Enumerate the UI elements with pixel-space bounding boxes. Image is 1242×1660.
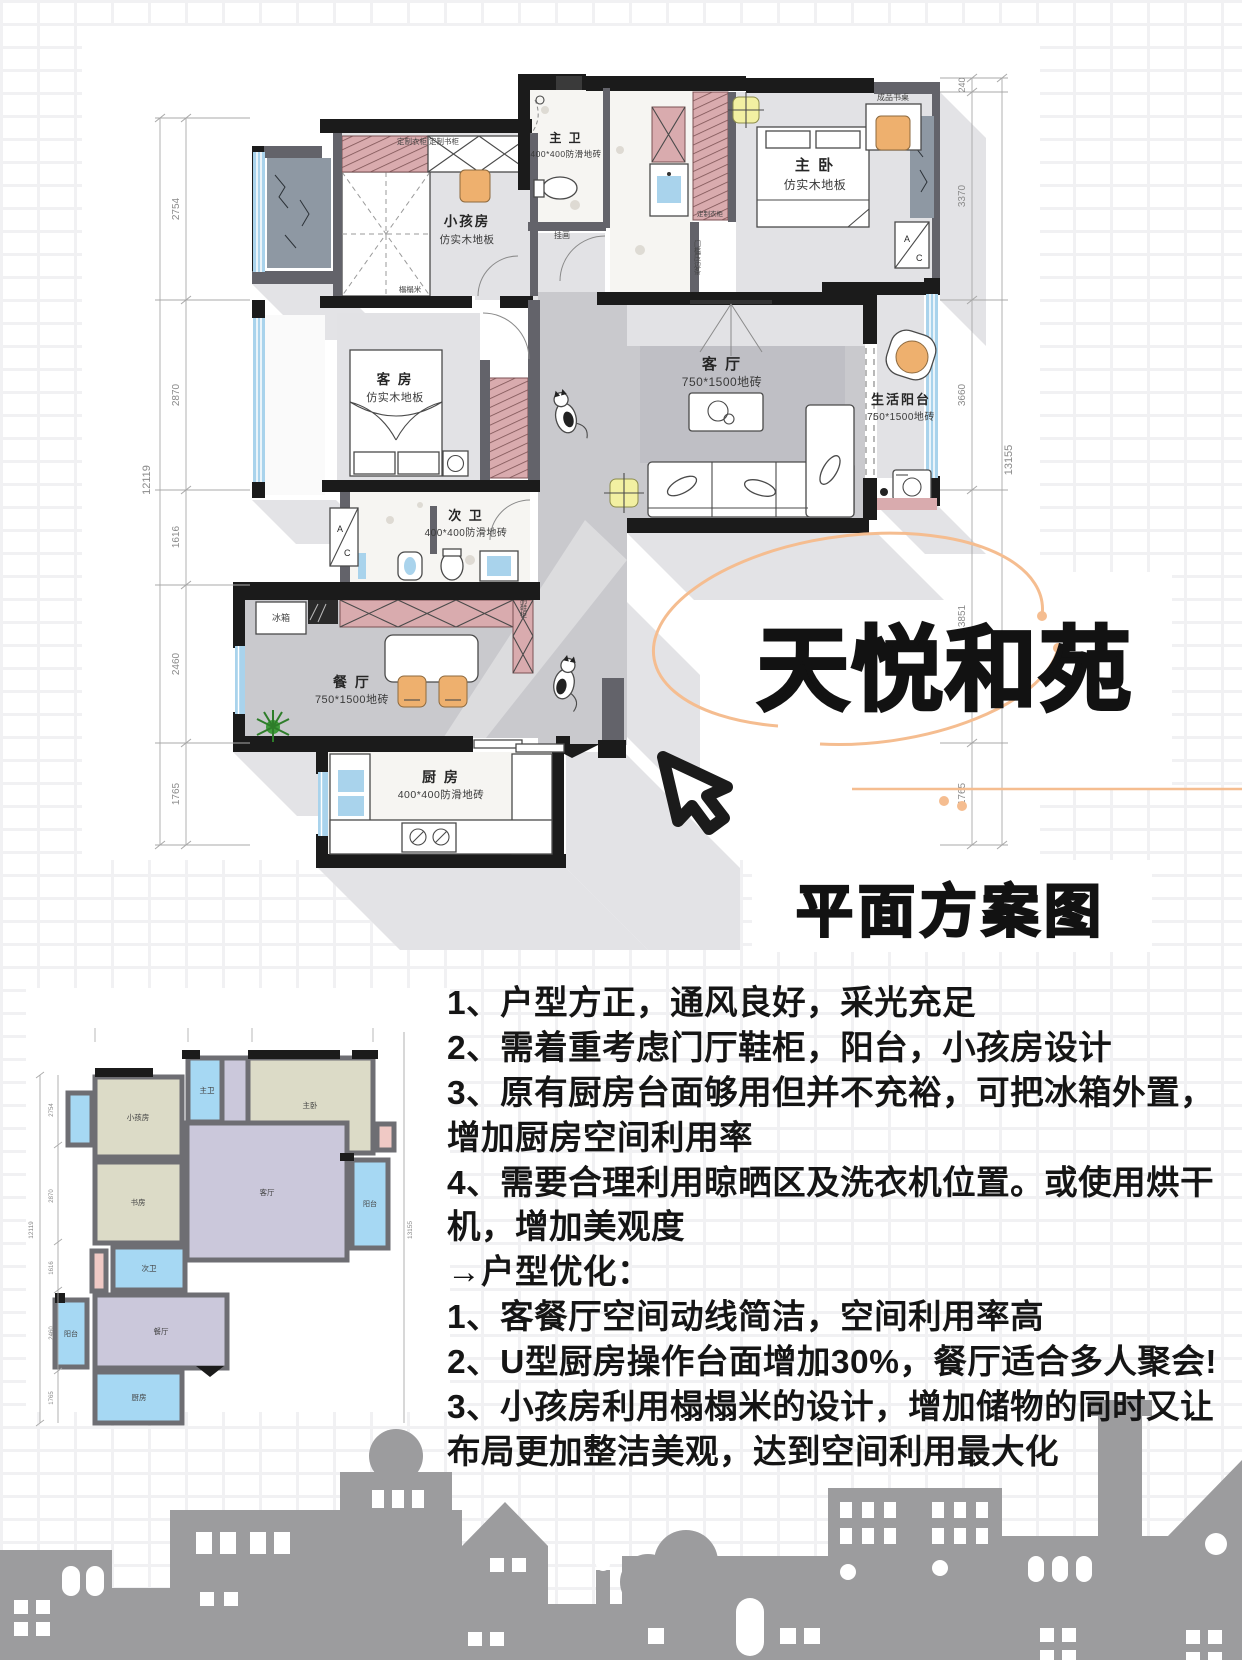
guest-room-name: 客 房 — [376, 371, 414, 387]
dim-right-total: 13155 — [1003, 445, 1015, 476]
dim-left-2: 1616 — [171, 525, 182, 548]
master-bath-toilet — [534, 177, 577, 199]
small-floor-plan: 小孩房 主卫 主卧 书房 客厅 阳台 次卫 阳台 餐厅 厨房 12119 275… — [28, 1028, 414, 1426]
guest-door-arc — [483, 313, 529, 359]
page-subtitle: 平面方案图 — [758, 866, 1144, 948]
living-room-name: 客 厅 — [701, 355, 742, 373]
note-line: 3、小孩房利用榻榻米的设计，增加储物的同时又让布局更加整洁美观，达到空间利用最大… — [447, 1386, 1237, 1476]
ac-letter-c2: C — [344, 548, 351, 558]
kids-balcony-window — [253, 152, 265, 272]
kids-room-name: 小孩房 — [444, 213, 491, 229]
dim-right-2: 3660 — [957, 383, 968, 406]
fridge-label: 冰箱 — [272, 612, 290, 623]
dim-right-0: 240 — [957, 77, 967, 92]
second-bath-name: 次 卫 — [448, 508, 484, 523]
guest-wardrobe — [488, 378, 528, 478]
small-label-dining: 餐厅 — [154, 1327, 169, 1336]
coffee-table — [689, 393, 763, 431]
threshold-label: 门槛压边条 — [694, 239, 702, 275]
fridge: 冰箱 — [256, 602, 306, 634]
small-dim-l1: 2870 — [49, 1189, 55, 1203]
dim-left-0: 2754 — [171, 197, 182, 220]
kids-chair — [460, 170, 490, 202]
note-line: →户型优化： — [447, 1251, 1237, 1296]
guest-nightstand — [443, 451, 468, 476]
small-label-master-bath: 主卫 — [200, 1085, 215, 1095]
small-dim-l4: 1765 — [49, 1391, 55, 1405]
master-closet-label: 定制衣柜 — [697, 209, 724, 218]
master-closet — [693, 92, 728, 220]
small-plan-rooms — [55, 1058, 394, 1423]
kitchen-name: 厨 房 — [422, 769, 460, 785]
life-balcony-window — [926, 294, 938, 478]
stove — [402, 823, 456, 852]
washing-machine — [893, 470, 931, 500]
bedroom-hall-floor — [475, 233, 605, 300]
kids-balcony-stone — [267, 158, 331, 268]
tree — [654, 1530, 718, 1594]
small-label-kids: 小孩房 — [127, 1112, 150, 1122]
small-label-study: 书房 — [131, 1197, 146, 1207]
small-label-second-bath: 次卫 — [142, 1263, 157, 1273]
dressing-cabinet — [652, 107, 685, 162]
kids-wardrobe-label: 定制衣柜 — [397, 136, 427, 146]
corridor-floor — [538, 292, 627, 745]
second-bath-floor: 400*400防滑地砖 — [425, 526, 508, 539]
small-dim-l2: 1616 — [49, 1261, 55, 1275]
kitchen-floor: 400*400防滑地砖 — [398, 788, 485, 801]
dim-left-1: 2870 — [171, 383, 182, 406]
dressing-basin — [650, 164, 688, 216]
small-label-balcony-r: 阳台 — [363, 1199, 377, 1208]
small-balcony-window — [68, 1093, 92, 1145]
note-line: 1、户型方正，通风良好，采光充足 — [447, 982, 1237, 1027]
dining-room-floor: 750*1500地砖 — [315, 692, 389, 706]
guest-room-floor: 仿实木地板 — [366, 390, 424, 404]
master-room-name: 主 卧 — [795, 156, 835, 174]
life-balcony-floor — [877, 295, 924, 478]
kitchen-window — [318, 772, 328, 836]
entry-shoe-cabinet: 定制鞋柜 — [513, 589, 533, 673]
dining-room-name: 餐 厅 — [332, 674, 371, 690]
floor-drain — [880, 488, 888, 496]
guest-balcony-window — [253, 318, 265, 482]
life-balcony-name: 生活阳台 — [871, 392, 931, 407]
small-dim-l0: 2754 — [49, 1103, 55, 1117]
guest-ac-box: A C — [330, 508, 358, 566]
dining-sideboard — [340, 600, 513, 627]
small-ac-right — [377, 1124, 394, 1150]
ac-letter-c: C — [916, 253, 923, 263]
dining-window — [235, 646, 245, 714]
vent-hatch — [556, 76, 582, 90]
second-bath-window — [358, 553, 366, 579]
ac-box-right: A C — [895, 222, 929, 268]
life-balcony-floor: 750*1500地砖 — [867, 410, 935, 423]
living-room-floor: 750*1500地砖 — [682, 374, 762, 389]
small-label-kitchen: 厨房 — [132, 1392, 147, 1402]
note-line: 1、客餐厅空间动线简洁，空间利用率高 — [447, 1296, 1237, 1341]
tatami-platform: 榻榻米 — [342, 172, 430, 296]
small-dim-l3: 2460 — [49, 1326, 55, 1340]
picture-label: 挂画 — [554, 230, 570, 240]
master-bed — [757, 127, 869, 227]
note-line: 2、U型厨房操作台面增加30%，餐厅适合多人聚会! — [447, 1341, 1237, 1386]
small-ac-left — [92, 1251, 106, 1291]
small-label-master: 主卧 — [303, 1100, 318, 1110]
dim-left-total: 12119 — [141, 465, 153, 495]
guest-bed — [350, 350, 442, 476]
second-bath-fixtures — [398, 549, 518, 581]
small-dim-left-total: 12119 — [28, 1221, 35, 1239]
main-floor-plan: 榻榻米 定制衣柜 定制书柜 定制衣柜 — [141, 74, 1015, 950]
note-line: 4、需要合理利用晾晒区及洗衣机位置。或使用烘干机，增加美观度 — [447, 1162, 1237, 1252]
page-title: 天悦和苑 — [742, 596, 1148, 729]
note-line: 2、需着重考虑门厅鞋柜，阳台，小孩房设计 — [447, 1027, 1237, 1072]
guest-balcony-floor — [265, 315, 325, 495]
master-bath-name: 主 卫 — [549, 130, 582, 145]
kids-room-floor: 仿实木地板 — [440, 233, 495, 246]
master-room-floor: 仿实木地板 — [784, 177, 847, 192]
tatami-label: 榻榻米 — [399, 284, 422, 294]
dim-left-4: 1765 — [171, 782, 182, 805]
note-line: 3、原有厨房台面够用但并不充裕，可把冰箱外置，增加厨房空间利用率 — [447, 1072, 1237, 1162]
ac-letter-a2: A — [337, 524, 343, 534]
dim-left-3: 2460 — [171, 652, 182, 675]
laundry-counter — [877, 498, 937, 510]
kids-bookcase-label: 定制书柜 — [429, 136, 459, 146]
small-corridor — [222, 1058, 248, 1128]
small-dim-right-total: 13155 — [407, 1221, 414, 1239]
cursor-arrow-icon — [663, 757, 727, 829]
ac-letter-a: A — [904, 234, 910, 244]
dome-roof — [369, 1429, 423, 1483]
small-label-balcony-b: 阳台 — [64, 1329, 78, 1338]
design-notes: 1、户型方正，通风良好，采光充足 2、需着重考虑门厅鞋柜，阳台，小孩房设计 3、… — [447, 982, 1237, 1476]
dining-counter-dark — [308, 600, 338, 624]
small-label-living: 客厅 — [260, 1187, 275, 1197]
desk-label: 成品书桌 — [877, 92, 909, 102]
dim-right-1: 3370 — [957, 184, 968, 207]
master-bath-floor: 400*400防滑地砖 — [530, 149, 601, 159]
